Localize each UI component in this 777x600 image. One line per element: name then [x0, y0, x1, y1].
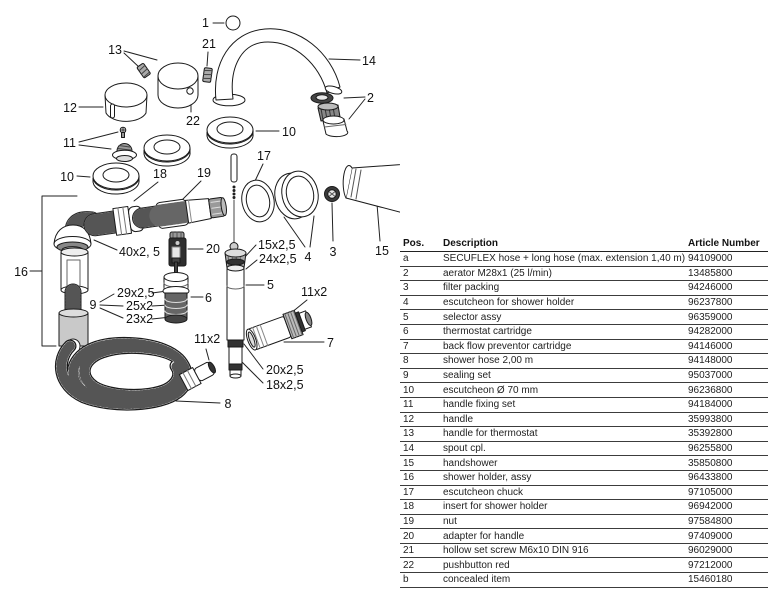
table-row: bconcealed item15460180 [400, 573, 768, 588]
part-label-5: 5 [267, 278, 274, 292]
table-cell-pos: 7 [400, 341, 443, 352]
table-cell-desc: aerator M28x1 (25 l/min) [443, 268, 688, 279]
part-label-13: 13 [108, 43, 122, 57]
table-row: 3filter packing94246000 [400, 281, 768, 296]
table-row: 15handshower35850800 [400, 456, 768, 471]
table-row: 20adapter for handle97409000 [400, 529, 768, 544]
table-cell-pos: 4 [400, 297, 443, 308]
table-cell-pos: 6 [400, 326, 443, 337]
table-cell-art: 96029000 [688, 545, 768, 556]
table-cell-art: 94146000 [688, 341, 768, 352]
part-label-1: 1 [202, 16, 209, 30]
part-shower-holder-16 [54, 219, 92, 359]
header-description: Description [443, 238, 688, 249]
table-cell-art: 94282000 [688, 326, 768, 337]
table-row: 13handle for thermostat35392800 [400, 427, 768, 442]
table-cell-desc: adapter for handle [443, 531, 688, 542]
part-thermostat-cartridge-6 [163, 258, 189, 323]
table-cell-art: 96255800 [688, 443, 768, 454]
part-set-screw-21 [203, 68, 213, 83]
table-cell-desc: back flow preventor cartridge [443, 341, 688, 352]
table-cell-desc: handle fixing set [443, 399, 688, 410]
part-label-9: 9 [90, 298, 97, 312]
table-cell-desc: pushbutton red [443, 560, 688, 571]
table-cell-pos: a [400, 253, 443, 264]
table-row: 4escutcheon for shower holder96237800 [400, 296, 768, 311]
table-row: 6thermostat cartridge94282000 [400, 325, 768, 340]
part-label-14: 14 [362, 54, 376, 68]
part-label-20: 20 [206, 242, 220, 256]
table-row: 2aerator M28x1 (25 l/min)13485800 [400, 267, 768, 282]
part-handshower-15 [343, 161, 400, 228]
part-filter-packing-3 [325, 187, 340, 202]
page: 1 21 13 14 2 12 22 10 11 10 17 18 19 16 … [0, 0, 777, 600]
part-handle-thermostat-13 [158, 63, 198, 108]
seal-label-23x2: 23x2 [126, 312, 153, 326]
table-row: 11handle fixing set94184000 [400, 398, 768, 413]
part-backflow-preventor-7 [243, 306, 315, 353]
table-cell-desc: handshower [443, 458, 688, 469]
part-escutcheon-shower-holder-4 [271, 168, 323, 222]
part-label-16: 16 [14, 265, 28, 279]
seal-label-20x25: 20x2,5 [266, 363, 304, 377]
table-cell-desc: hollow set screw M6x10 DIN 916 [443, 545, 688, 556]
table-cell-art: 96359000 [688, 312, 768, 323]
part-label-6: 6 [205, 291, 212, 305]
table-cell-art: 13485800 [688, 268, 768, 279]
part-label-10-left: 10 [60, 170, 74, 184]
table-cell-desc: insert for shower holder [443, 501, 688, 512]
part-label-15: 15 [375, 244, 389, 258]
part-nut-19 [156, 199, 189, 229]
table-cell-art: 97409000 [688, 531, 768, 542]
table-row: 5selector assy96359000 [400, 310, 768, 325]
header-pos: Pos. [400, 238, 443, 249]
part-label-8: 8 [225, 397, 232, 411]
table-cell-pos: b [400, 574, 443, 585]
table-row: 19nut97584800 [400, 515, 768, 530]
table-row: 9sealing set95037000 [400, 369, 768, 384]
table-cell-desc: selector assy [443, 312, 688, 323]
part-label-12: 12 [63, 101, 77, 115]
part-label-10-right: 10 [282, 125, 296, 139]
table-cell-art: 96433800 [688, 472, 768, 483]
table-cell-art: 35993800 [688, 414, 768, 425]
table-cell-desc: handle [443, 414, 688, 425]
table-cell-pos: 12 [400, 414, 443, 425]
seal-label-40x25: 40x2, 5 [119, 245, 160, 259]
seal-label-18x25: 18x2,5 [266, 378, 304, 392]
part-label-7: 7 [327, 336, 334, 350]
table-row: 10escutcheon Ø 70 mm96236800 [400, 383, 768, 398]
part-label-19: 19 [197, 166, 211, 180]
table-row: 14spout cpl.96255800 [400, 442, 768, 457]
table-cell-pos: 20 [400, 531, 443, 542]
part-escutcheon-10-left [93, 163, 139, 194]
table-cell-pos: 21 [400, 545, 443, 556]
table-cell-desc: shower holder, assy [443, 472, 688, 483]
table-row: 7back flow preventor cartridge94146000 [400, 340, 768, 355]
part-shower-hose-8 [61, 343, 218, 404]
table-cell-desc: spout cpl. [443, 443, 688, 454]
table-cell-pos: 3 [400, 282, 443, 293]
table-cell-pos: 22 [400, 560, 443, 571]
part-label-22: 22 [186, 114, 200, 128]
table-row: 12handle35993800 [400, 413, 768, 428]
parts-table: Pos. Description Article Number aSECUFLE… [400, 236, 768, 588]
table-cell-art: 94246000 [688, 282, 768, 293]
table-cell-pos: 16 [400, 472, 443, 483]
table-cell-desc: concealed item [443, 574, 688, 585]
table-cell-pos: 11 [400, 399, 443, 410]
table-cell-desc: handle for thermostat [443, 428, 688, 439]
table-cell-art: 35850800 [688, 458, 768, 469]
table-cell-pos: 8 [400, 355, 443, 366]
table-cell-art: 96942000 [688, 501, 768, 512]
table-cell-pos: 10 [400, 385, 443, 396]
parts-table-header: Pos. Description Article Number [400, 236, 768, 252]
table-cell-pos: 2 [400, 268, 443, 279]
table-cell-art: 97105000 [688, 487, 768, 498]
part-pushbutton-22 [187, 88, 193, 94]
table-row: 18insert for shower holder96942000 [400, 500, 768, 515]
table-cell-art: 96236800 [688, 385, 768, 396]
table-cell-pos: 9 [400, 370, 443, 381]
part-label-17: 17 [257, 149, 271, 163]
part-selector-assy-5 [225, 154, 246, 378]
seal-label-11x2-upper: 11x2 [301, 285, 327, 299]
part-label-18: 18 [153, 167, 167, 181]
table-cell-art: 95037000 [688, 370, 768, 381]
table-cell-art: 94109000 [688, 253, 768, 264]
seal-label-11x2-lower: 11x2 [194, 332, 220, 346]
table-cell-desc: sealing set [443, 370, 688, 381]
parts-table-rows: aSECUFLEX hose + long hose (max. extensi… [400, 252, 768, 588]
part-label-4: 4 [305, 250, 312, 264]
part-aerator-2 [311, 93, 348, 137]
table-cell-desc: escutcheon for shower holder [443, 297, 688, 308]
table-row: 21hollow set screw M6x10 DIN 91696029000 [400, 544, 768, 559]
table-row: 17escutcheon chuck97105000 [400, 486, 768, 501]
part-escutcheon-10-middle [144, 135, 190, 166]
table-cell-art: 94184000 [688, 399, 768, 410]
table-cell-desc: thermostat cartridge [443, 326, 688, 337]
part-secuflex-hose-assembly [93, 193, 228, 238]
table-cell-pos: 19 [400, 516, 443, 527]
table-row: aSECUFLEX hose + long hose (max. extensi… [400, 252, 768, 267]
table-cell-art: 96237800 [688, 297, 768, 308]
table-cell-pos: 5 [400, 312, 443, 323]
seal-label-24x25: 24x2,5 [259, 252, 297, 266]
table-cell-art: 15460180 [688, 574, 768, 585]
table-cell-desc: shower hose 2,00 m [443, 355, 688, 366]
table-cell-pos: 14 [400, 443, 443, 454]
seal-label-25x2: 25x2 [126, 299, 153, 313]
part-escutcheon-chuck-17 [238, 177, 278, 225]
table-cell-pos: 17 [400, 487, 443, 498]
part-label-11: 11 [63, 136, 76, 150]
table-cell-art: 97584800 [688, 516, 768, 527]
table-row: 22pushbutton red97212000 [400, 558, 768, 573]
part-label-3: 3 [330, 245, 337, 259]
table-cell-pos: 13 [400, 428, 443, 439]
exploded-parts-diagram: 1 21 13 14 2 12 22 10 11 10 17 18 19 16 … [0, 0, 400, 600]
table-cell-art: 97212000 [688, 560, 768, 571]
table-row: 16shower holder, assy96433800 [400, 471, 768, 486]
table-cell-desc: escutcheon Ø 70 mm [443, 385, 688, 396]
table-cell-desc: escutcheon chuck [443, 487, 688, 498]
part-set-screw-13 [137, 63, 151, 78]
part-escutcheon-10-right [207, 117, 253, 148]
table-cell-desc: filter packing [443, 282, 688, 293]
table-row: 8shower hose 2,00 m94148000 [400, 354, 768, 369]
part-pushbutton-cap-1 [226, 16, 240, 30]
table-cell-pos: 18 [400, 501, 443, 512]
table-cell-art: 35392800 [688, 428, 768, 439]
seal-label-15x25: 15x2,5 [258, 238, 296, 252]
table-cell-pos: 15 [400, 458, 443, 469]
part-label-2: 2 [367, 91, 374, 105]
table-cell-art: 94148000 [688, 355, 768, 366]
part-handle-12 [105, 83, 147, 121]
header-article: Article Number [688, 238, 768, 249]
table-cell-desc: SECUFLEX hose + long hose (max. extensio… [443, 253, 688, 264]
table-cell-desc: nut [443, 516, 688, 527]
part-label-21: 21 [202, 37, 216, 51]
seal-label-29x25: 29x2,5 [117, 286, 155, 300]
